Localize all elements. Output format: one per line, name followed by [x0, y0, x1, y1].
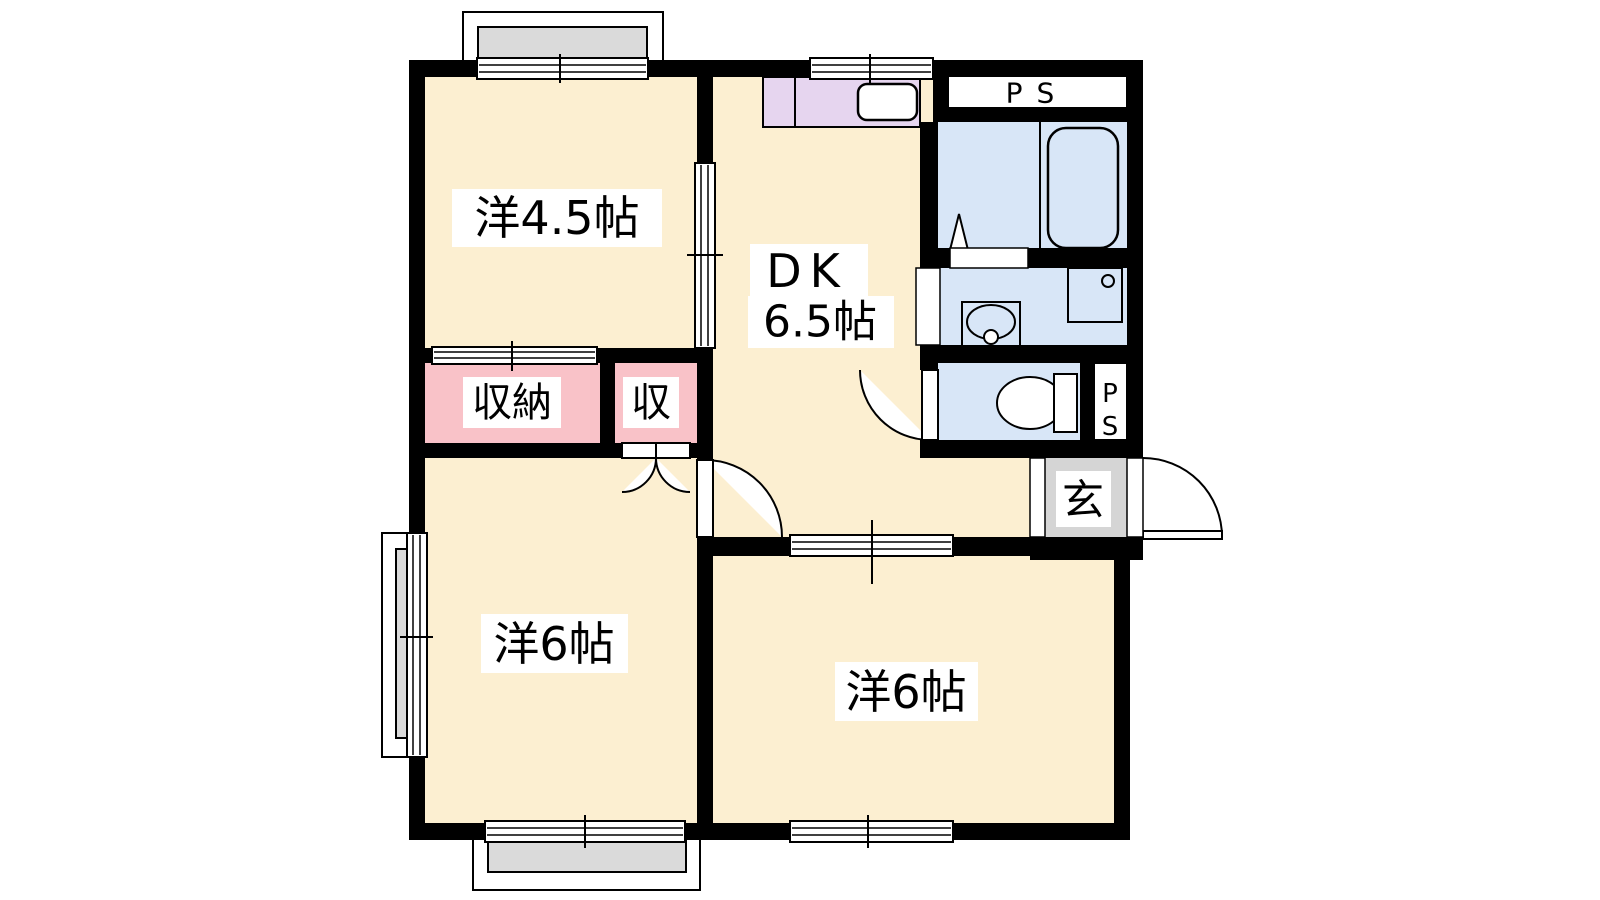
wall-segment	[600, 363, 615, 443]
bathroom-door-opening	[950, 248, 1028, 268]
window-top-left	[477, 54, 648, 83]
door-entrance	[1127, 458, 1222, 539]
wall-segment	[1030, 537, 1143, 560]
window-frame	[407, 533, 427, 757]
wall-segment	[697, 77, 713, 163]
entrance-step-threshold	[1030, 458, 1045, 537]
balcony-top	[463, 12, 663, 62]
wall-segment	[685, 823, 790, 840]
balcony-top-floor	[478, 27, 647, 60]
wall-segment	[953, 823, 1130, 840]
entrance-label: 玄	[1062, 476, 1104, 525]
kitchen-sink-icon	[858, 84, 917, 120]
wall-segment	[690, 443, 713, 458]
floor-lower	[425, 556, 1114, 823]
door-leaf	[697, 460, 713, 537]
room-label-bottom-left: 洋6帖	[493, 617, 614, 671]
pipe-space-top-label: PS	[1006, 77, 1069, 110]
wall-segment	[1114, 556, 1130, 840]
room-label-dk: DK	[766, 244, 848, 298]
wall-segment	[920, 122, 938, 268]
wall-segment	[648, 60, 810, 77]
sliding-door-frame	[432, 347, 597, 364]
pipe-space-side-label-p: P	[1102, 379, 1118, 409]
closet-small-label: 収	[631, 380, 671, 426]
wall-segment	[409, 60, 425, 533]
wall-segment	[409, 823, 485, 840]
floorplan-canvas: 洋4.5帖 DK 6.5帖 収納 収 洋6帖 洋6帖 玄 PS P S	[0, 0, 1600, 900]
pipe-space-side-label-s: S	[1102, 412, 1119, 442]
wall-segment	[420, 348, 432, 363]
entrance-door-threshold	[1127, 458, 1143, 537]
washbasin-drain-icon	[984, 330, 998, 344]
wall-segment	[1080, 363, 1094, 440]
washroom-door-opening	[916, 268, 940, 345]
wall-segment	[920, 440, 1143, 458]
room-label-dk-size: 6.5帖	[763, 297, 877, 348]
wall-segment	[409, 443, 622, 458]
toilet-fixture	[997, 374, 1077, 432]
wall-segment	[697, 537, 713, 823]
kitchen-counter	[763, 77, 920, 127]
balcony-bottom	[473, 838, 700, 890]
wall-segment	[953, 537, 1030, 556]
floorplan-page: 洋4.5帖 DK 6.5帖 収納 収 洋6帖 洋6帖 玄 PS P S	[0, 0, 1600, 900]
wall-segment	[597, 348, 713, 363]
window-frame	[810, 58, 933, 79]
window-frame	[477, 58, 648, 79]
wall-segment	[920, 345, 1143, 363]
window-top-kitchen	[810, 54, 933, 83]
door-leaf	[922, 370, 938, 440]
room-label-top-left: 洋4.5帖	[474, 191, 639, 245]
room-label-bottom-right: 洋6帖	[845, 665, 966, 719]
window-frame	[790, 821, 953, 842]
wall-segment	[697, 537, 790, 556]
door-leaf	[1143, 531, 1222, 539]
door-swing-arc	[1143, 458, 1222, 537]
washroom-floor	[936, 267, 1127, 345]
toilet-tank-icon	[1054, 374, 1077, 432]
bathroom-floor	[936, 122, 1127, 250]
balcony-bottom-floor	[488, 838, 686, 872]
closet-large-label: 収納	[472, 380, 552, 426]
